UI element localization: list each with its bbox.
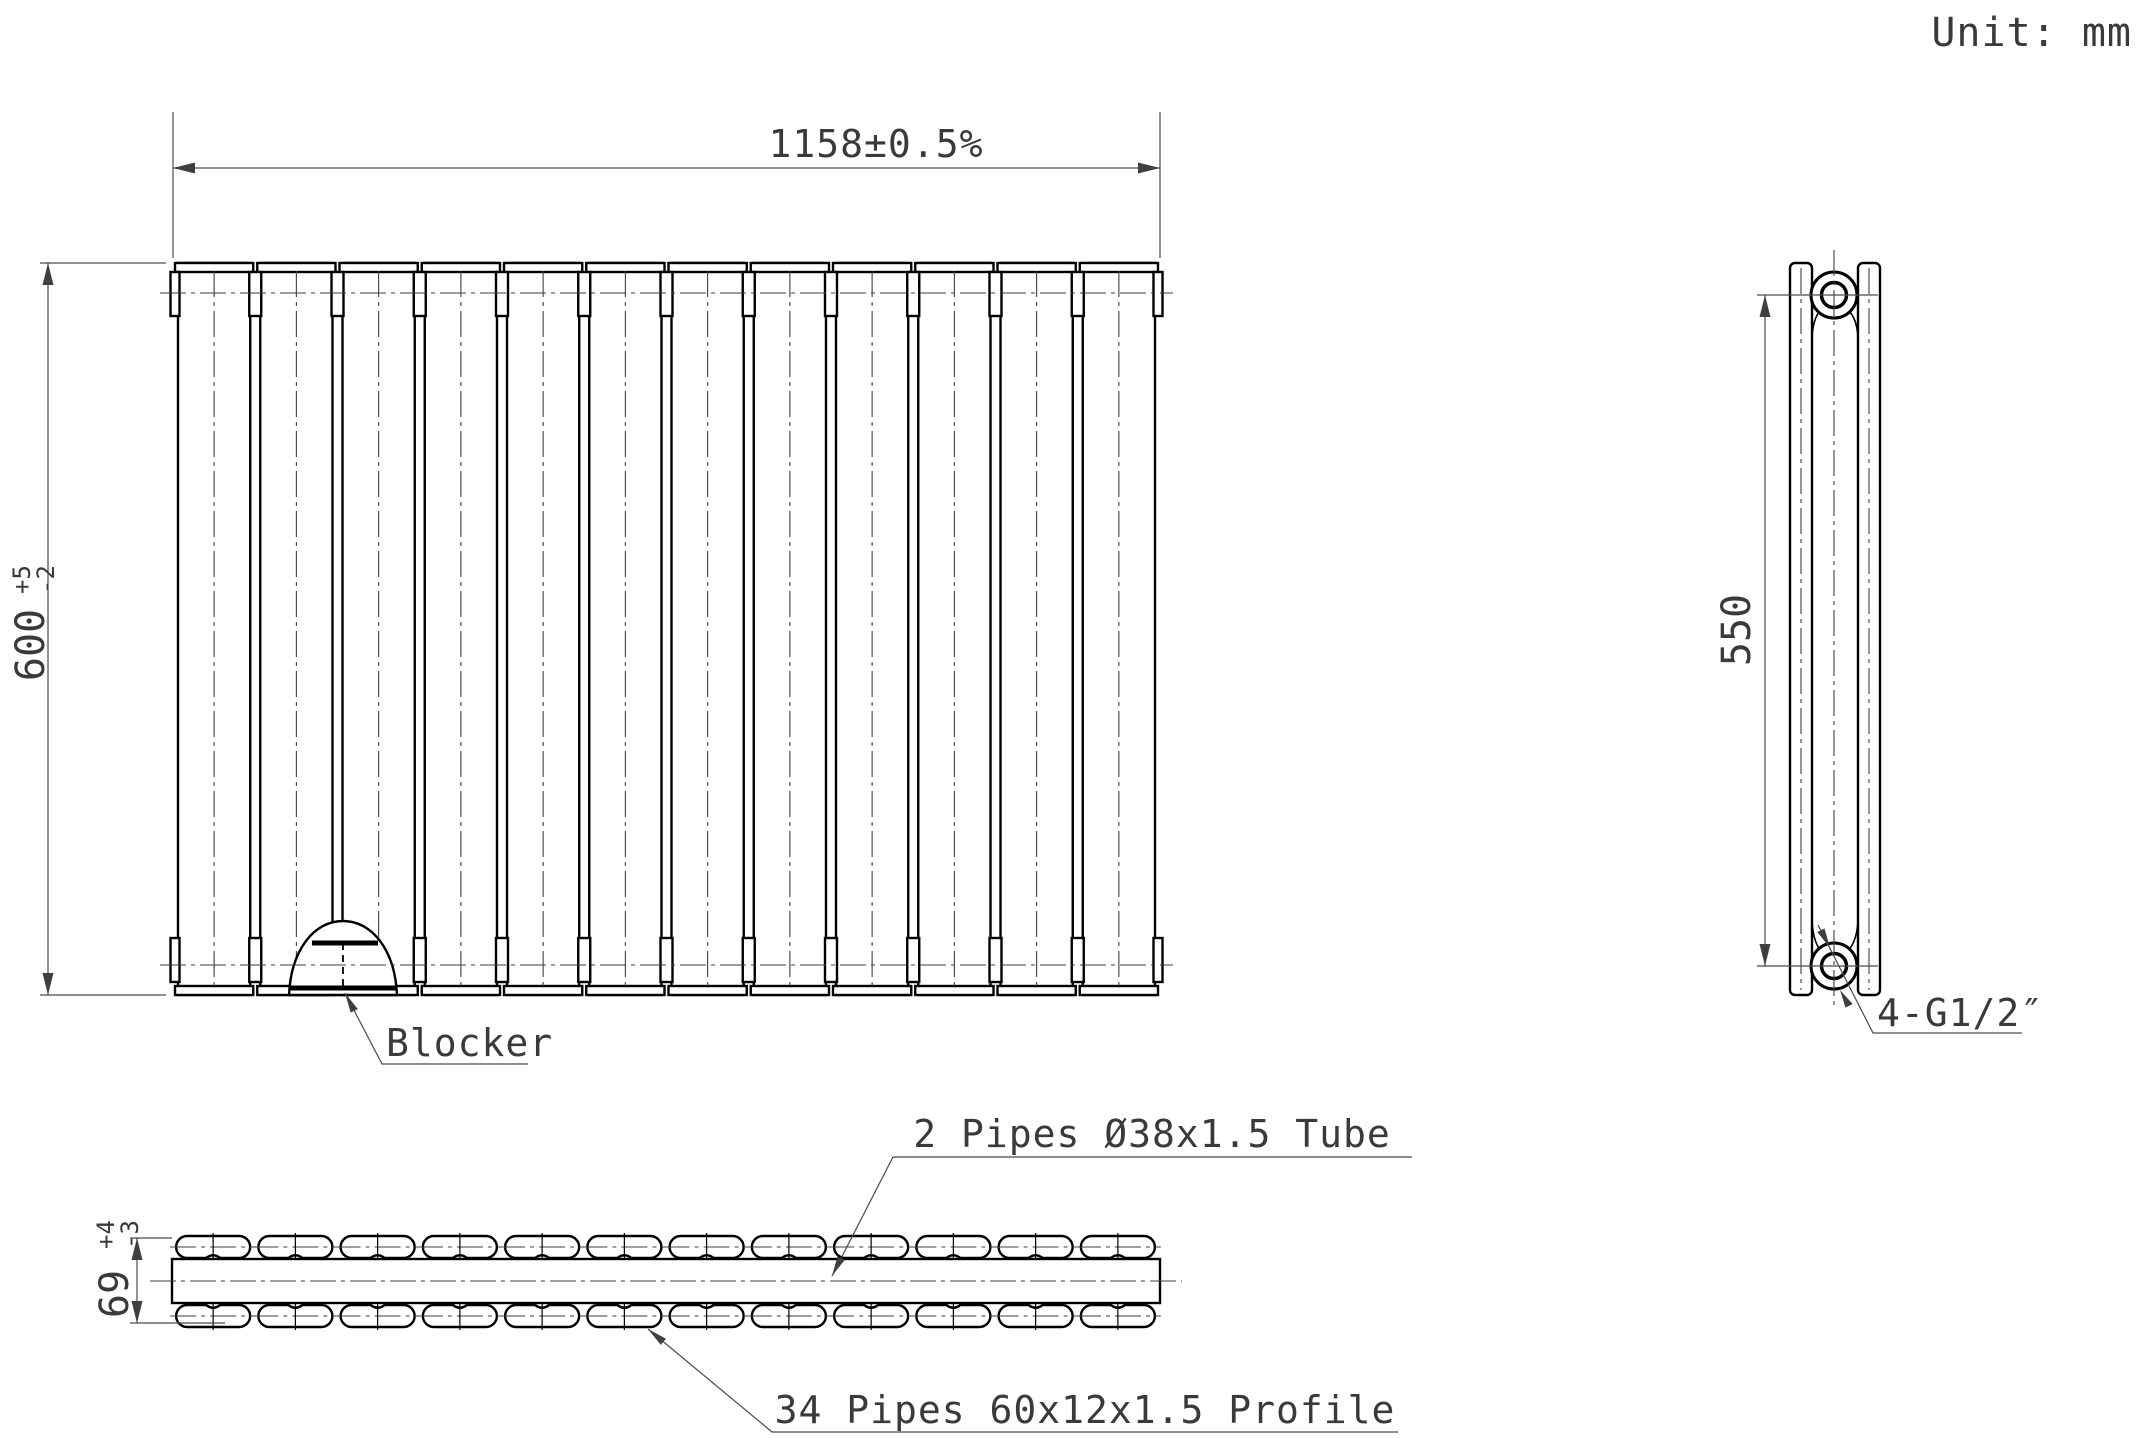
- arrowhead: [1138, 163, 1160, 174]
- panel-array: [175, 263, 1158, 995]
- drawing-sheet: 1158±0.5% 600 +5 -2 550 69 +4 -3: [0, 0, 2138, 1438]
- panel-top-cap: [175, 263, 253, 272]
- panel-bottom-cap: [669, 986, 747, 995]
- top-connector: [332, 272, 344, 316]
- panel-bottom-cap: [504, 986, 582, 995]
- panel-top-cap: [504, 263, 582, 272]
- end-tab: [1154, 938, 1163, 982]
- side-view: [1757, 250, 1880, 1010]
- panel-top-cap: [340, 263, 418, 272]
- panel-bottom-cap: [833, 986, 911, 995]
- bottom-connector: [414, 938, 426, 982]
- top-connector: [578, 272, 590, 316]
- end-tab: [171, 938, 180, 982]
- top-connector: [743, 272, 755, 316]
- depth-dim-group: 69 +4 -3: [92, 1220, 144, 1318]
- panel-bottom-cap: [998, 986, 1076, 995]
- unit-label: Unit: mm: [1931, 10, 2132, 56]
- height-dim-tol-minus: -2: [32, 565, 60, 594]
- top-connector: [825, 272, 837, 316]
- arrowhead: [1760, 944, 1771, 966]
- panel-top-cap: [422, 263, 500, 272]
- end-tab: [1154, 272, 1163, 316]
- arrowhead: [648, 1329, 666, 1345]
- bottom-connector: [496, 938, 508, 982]
- bottom-connector: [578, 938, 590, 982]
- cad-drawing: 1158±0.5% 600 +5 -2 550 69 +4 -3: [0, 0, 2138, 1438]
- panel-top-cap: [257, 263, 335, 272]
- panel-bottom-cap: [915, 986, 993, 995]
- bottom-connector: [661, 938, 673, 982]
- front-view: [160, 263, 1173, 995]
- top-connector: [496, 272, 508, 316]
- top-connector: [907, 272, 919, 316]
- panel-top-cap: [586, 263, 664, 272]
- panel-bottom-cap: [422, 986, 500, 995]
- ports-label: 4-G1/2″: [1877, 991, 2044, 1035]
- blocker-label: Blocker: [386, 1021, 553, 1065]
- side-dim-group: 550: [1714, 594, 1760, 666]
- panel-top-cap: [915, 263, 993, 272]
- bottom-connector: [907, 938, 919, 982]
- end-tab: [171, 272, 180, 316]
- panel-bottom-cap: [586, 986, 664, 995]
- panel-top-cap: [751, 263, 829, 272]
- panel-bottom-cap: [751, 986, 829, 995]
- top-connector: [1072, 272, 1084, 316]
- bottom-connector: [825, 938, 837, 982]
- arrowhead: [1760, 295, 1771, 317]
- arrowhead: [173, 163, 195, 174]
- panel-bottom-cap: [1080, 986, 1158, 995]
- arrowhead: [43, 263, 54, 285]
- profile-label: 34 Pipes 60x12x1.5 Profile: [775, 1388, 1396, 1432]
- width-dim-text: 1158±0.5%: [769, 122, 984, 166]
- panel-top-cap: [998, 263, 1076, 272]
- panel-bottom-cap: [175, 986, 253, 995]
- height-dim-text: 600: [8, 609, 54, 681]
- height-dim-group: 600 +5 -2: [8, 565, 60, 681]
- depth-dim-tol-minus: -3: [116, 1220, 144, 1249]
- depth-dim-text: 69: [92, 1270, 138, 1318]
- panel-top-cap: [669, 263, 747, 272]
- arrowhead: [1840, 990, 1853, 1008]
- top-connector: [249, 272, 261, 316]
- tube-label: 2 Pipes Ø38x1.5 Tube: [913, 1112, 1391, 1156]
- panel-top-cap: [833, 263, 911, 272]
- top-connector: [661, 272, 673, 316]
- section-view: [150, 1233, 1182, 1330]
- bottom-connector: [1072, 938, 1084, 982]
- bottom-connector: [990, 938, 1002, 982]
- arrowhead: [43, 973, 54, 995]
- bottom-connector: [249, 938, 261, 982]
- bottom-connector: [743, 938, 755, 982]
- side-dim-text: 550: [1714, 594, 1760, 666]
- top-connector: [990, 272, 1002, 316]
- panel-top-cap: [1080, 263, 1158, 272]
- top-connector: [414, 272, 426, 316]
